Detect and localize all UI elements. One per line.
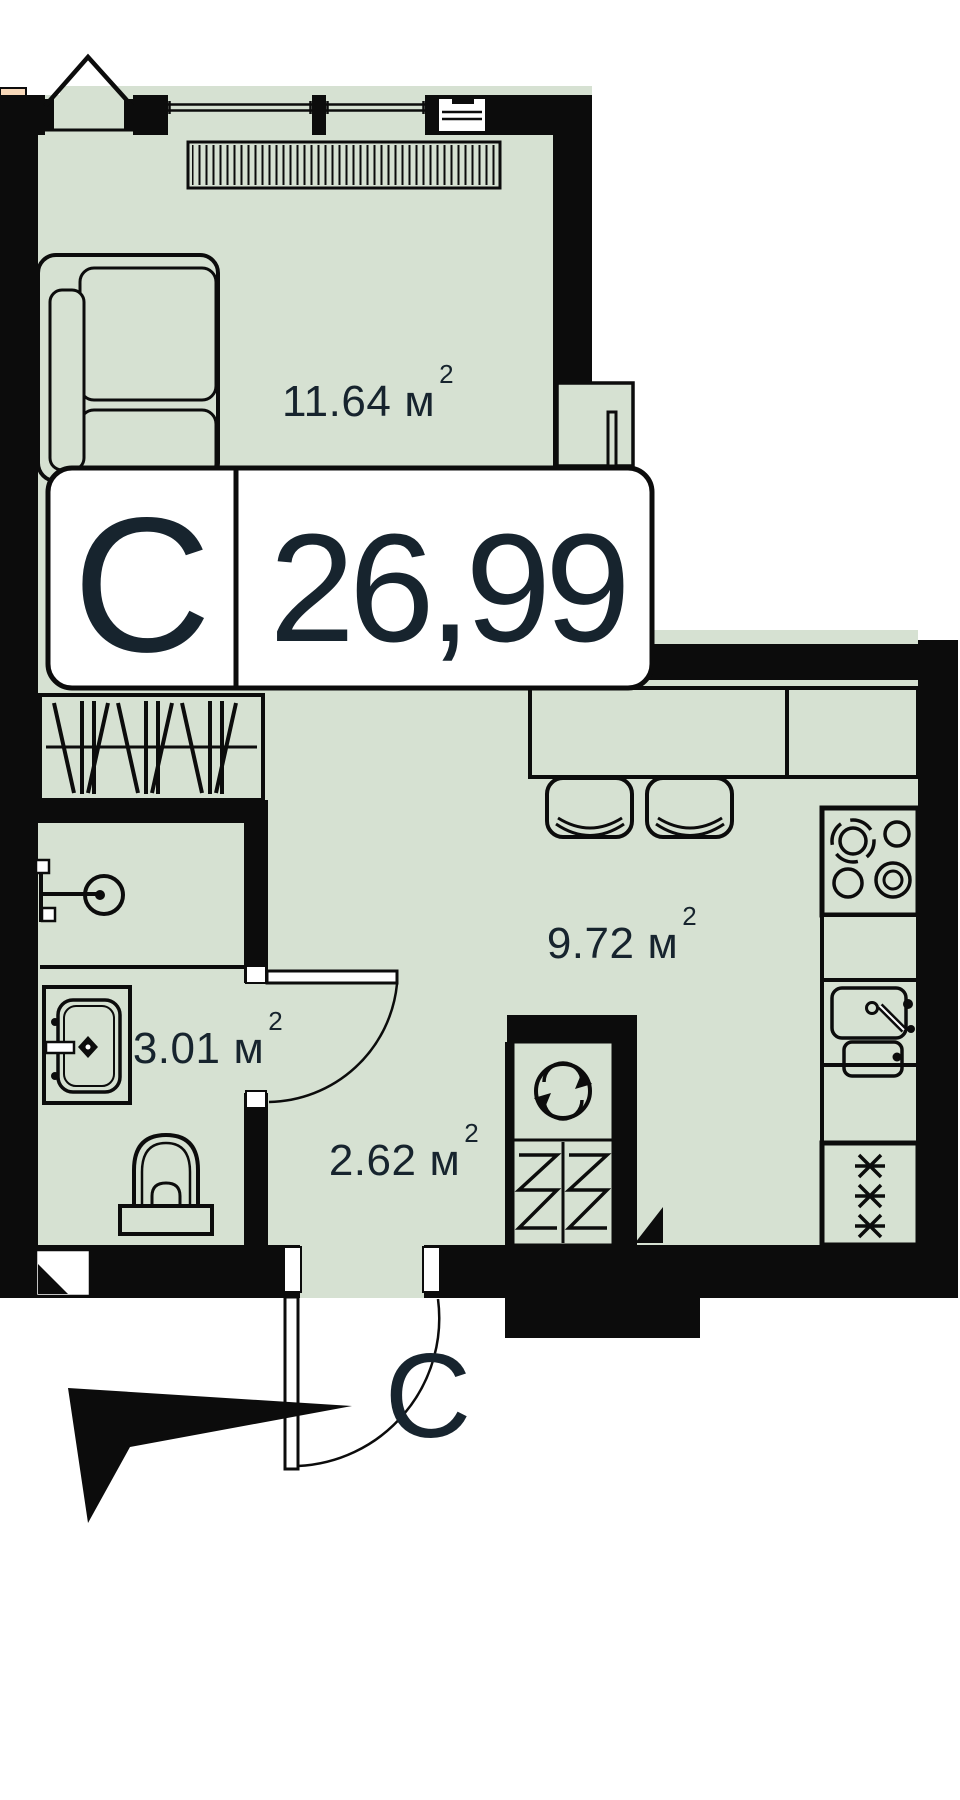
freezer-icon bbox=[822, 1143, 918, 1245]
door-jamb bbox=[423, 1247, 440, 1292]
washbasin-icon bbox=[44, 987, 130, 1103]
area-unit: м bbox=[429, 1136, 460, 1185]
stool-icon bbox=[647, 778, 732, 837]
bathroom-area-label: 3.01м2 bbox=[133, 1027, 283, 1071]
total-area-value: 26,99 bbox=[269, 511, 624, 665]
corner-cabinet-icon bbox=[787, 688, 918, 777]
washing-machine-icon bbox=[513, 1042, 613, 1140]
counter-segment bbox=[822, 915, 918, 980]
wall-right bbox=[918, 640, 958, 1298]
entrance-opening bbox=[300, 1245, 424, 1298]
kitchen-roof-sliver bbox=[652, 630, 918, 644]
door-jamb bbox=[284, 1247, 301, 1292]
window-opening bbox=[326, 95, 425, 135]
area-exponent: 2 bbox=[464, 1118, 479, 1148]
bar-counter-icon bbox=[530, 688, 787, 777]
hallway-area-label: 2.62м2 bbox=[329, 1139, 479, 1183]
wall-bottom bbox=[0, 1245, 958, 1298]
area-value: 9.72 bbox=[547, 919, 635, 968]
area-exponent: 2 bbox=[682, 901, 697, 931]
north-arrow-icon bbox=[68, 1388, 352, 1523]
wall-bottom-step bbox=[505, 1298, 700, 1338]
wardrobe-icon bbox=[40, 695, 263, 800]
door-jamb bbox=[246, 966, 266, 983]
area-unit: м bbox=[647, 919, 678, 968]
stove-icon bbox=[822, 808, 918, 915]
sofa-icon bbox=[38, 255, 218, 481]
tv-stand-icon bbox=[557, 383, 633, 466]
kitchen-area-label: 9.72м2 bbox=[547, 922, 697, 966]
door-jamb bbox=[246, 1091, 266, 1108]
area-exponent: 2 bbox=[439, 359, 454, 389]
radiator-hatch bbox=[192, 145, 496, 185]
area-unit: м bbox=[233, 1024, 264, 1073]
vent-shaft-tab bbox=[452, 95, 474, 104]
window-opening bbox=[168, 95, 312, 135]
compass-north-label: С bbox=[385, 1336, 472, 1456]
area-value: 11.64 bbox=[282, 377, 391, 426]
kitchen-sink-icon bbox=[822, 980, 918, 1076]
stool-icon bbox=[547, 778, 632, 837]
floor-plan-page: 11.64м2 9.72м2 3.01м2 2.62м2 С 26,99 С bbox=[0, 0, 960, 1800]
wall-bath-top bbox=[0, 800, 263, 823]
area-value: 2.62 bbox=[329, 1136, 417, 1185]
floor-plan-drawing bbox=[0, 0, 960, 1800]
area-unit: м bbox=[404, 377, 435, 426]
shower-partition-line bbox=[40, 965, 244, 969]
block-letter: С bbox=[73, 489, 212, 681]
closet-icon bbox=[513, 1140, 613, 1245]
living-room-area-label: 11.64м2 bbox=[282, 380, 454, 424]
area-value: 3.01 bbox=[133, 1024, 221, 1073]
wall-left bbox=[0, 128, 38, 1298]
area-exponent: 2 bbox=[268, 1006, 283, 1036]
wall-closet-right bbox=[613, 1015, 637, 1245]
